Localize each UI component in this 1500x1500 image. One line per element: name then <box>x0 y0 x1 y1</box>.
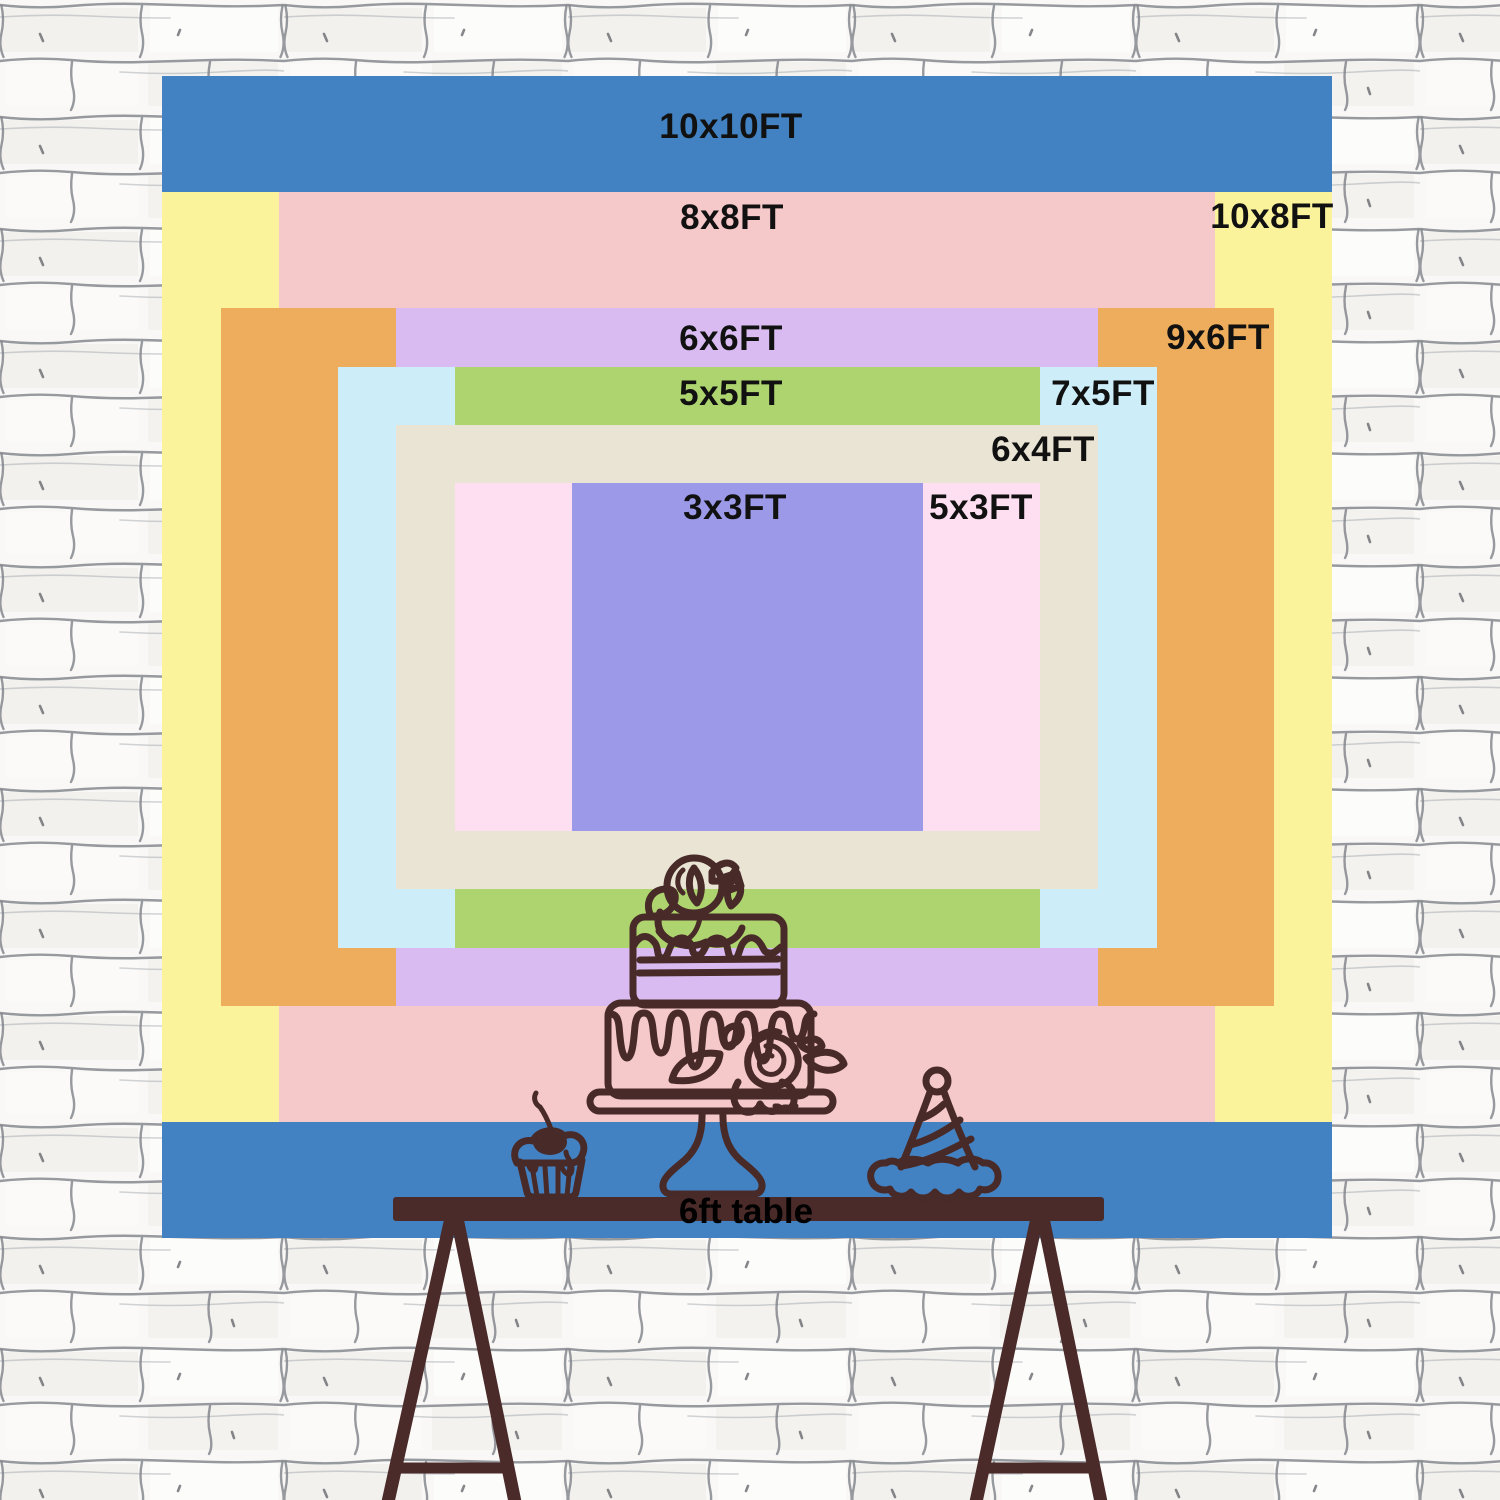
backdrop-size-labels: 10x10FT10x8FT8x8FT9x6FT6x6FT7x5FT5x5FT6x… <box>0 0 1500 1500</box>
backdrop-size-chart: 10x10FT10x8FT8x8FT9x6FT6x6FT7x5FT5x5FT6x… <box>0 0 1500 1500</box>
table-size-label: 6ft table <box>679 1192 813 1232</box>
size-label-7x5: 7x5FT <box>1051 374 1155 414</box>
size-label-5x5: 5x5FT <box>679 374 783 414</box>
size-label-8x8: 8x8FT <box>680 198 784 238</box>
size-label-10x8: 10x8FT <box>1210 197 1334 237</box>
size-label-10x10: 10x10FT <box>659 107 803 147</box>
size-label-3x3: 3x3FT <box>683 488 787 528</box>
size-label-6x4: 6x4FT <box>991 430 1095 470</box>
size-label-9x6: 9x6FT <box>1166 318 1270 358</box>
size-label-5x3: 5x3FT <box>929 488 1033 528</box>
size-label-6x6: 6x6FT <box>679 319 783 359</box>
